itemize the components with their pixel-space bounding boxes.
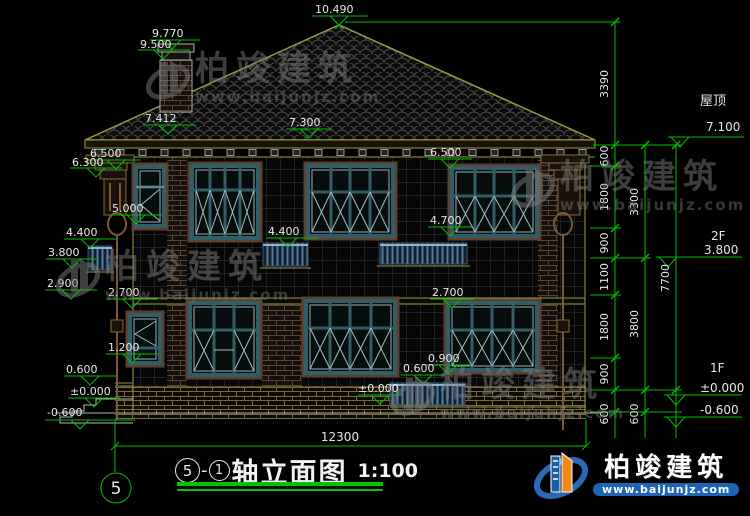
brand-name: 柏竣建筑	[604, 454, 728, 483]
roof-label: 屋顶	[700, 94, 726, 109]
dim-left: 0.600	[66, 363, 98, 376]
dim-mid: 0.600	[403, 362, 435, 375]
vchain-label: 600	[598, 146, 611, 167]
dim-left: 1.200	[108, 341, 140, 354]
f2-level: 3.800	[704, 243, 738, 257]
dim-mid: 4.400	[268, 225, 300, 238]
dim-left: 5.000	[112, 202, 144, 215]
total-width-dim: 12300	[321, 430, 359, 444]
roof-level: 7.100	[706, 120, 740, 134]
dim-left: 2.900	[47, 277, 79, 290]
dim-eave: 7.300	[289, 116, 321, 129]
railing-2f-left	[260, 243, 311, 268]
vchain-label: 1100	[598, 263, 611, 291]
window-2f-left	[189, 163, 261, 241]
title-underline-thin	[177, 489, 383, 491]
title-underline	[177, 482, 383, 486]
dim-mid: 6.500	[430, 146, 462, 159]
dim-left: -0.600	[47, 406, 82, 419]
brand-url: www.baijunjz.com	[593, 483, 739, 496]
title-dash: -	[201, 460, 208, 481]
axis-bubble-number: 5	[111, 479, 122, 499]
eave-fascia	[85, 140, 595, 148]
eave-dentils	[85, 150, 595, 158]
dim-mid: ±0.000	[358, 382, 399, 395]
brick-pilaster	[167, 157, 187, 386]
brand-logo: 柏竣建筑 www.baijunjz.com	[532, 444, 739, 506]
dim-left: ±0.000	[70, 385, 111, 398]
vchain-label: 7700	[659, 264, 672, 292]
dim-mid: 2.700	[432, 286, 464, 299]
dim-left: 2.700	[108, 286, 140, 299]
vchain-label: 900	[598, 364, 611, 385]
dim-left: 3.800	[48, 246, 80, 259]
vchain-label: 3800	[628, 310, 641, 338]
railing-2f-right	[377, 243, 470, 266]
brand-logo-icon	[532, 444, 590, 506]
window-1f-left	[187, 300, 261, 378]
window-2f-middle	[305, 163, 396, 239]
dim-chimney-cap: 9.500	[140, 38, 172, 51]
window-2f-stair	[133, 164, 167, 229]
dim-mid: 4.700	[430, 214, 462, 227]
elevation-svg: 10.490 9.770 9.500 7.412 7.300 6.500 6.3…	[0, 0, 750, 516]
vchain-label: 3300	[628, 188, 641, 216]
vchain-label: 3390	[598, 70, 611, 98]
vchain-label: 600	[598, 404, 611, 425]
below-level: -0.600	[700, 403, 739, 417]
dim-apex: 10.490	[315, 3, 354, 16]
dim-left: 6.300	[72, 156, 104, 169]
window-2f-right	[449, 165, 540, 239]
vchain-label: 900	[598, 233, 611, 254]
f2-label: 2F	[711, 229, 726, 243]
brick-pilaster	[262, 304, 302, 386]
dim-chimney-base: 7.412	[145, 112, 177, 125]
building-facade	[55, 25, 600, 430]
cad-elevation-drawing: 10.490 9.770 9.500 7.412 7.300 6.500 6.3…	[0, 0, 750, 516]
title-scale: 1:100	[358, 460, 418, 482]
vchain-label: 1800	[598, 313, 611, 341]
title-axis-end-bubble: 1	[209, 460, 230, 481]
window-1f-stair	[127, 312, 163, 366]
window-1f-middle	[303, 298, 398, 376]
f1-label: 1F	[710, 361, 725, 375]
title-axis-start-bubble: 5	[175, 458, 200, 483]
vchain-label: 600	[628, 404, 641, 425]
f1-level: ±0.000	[700, 381, 744, 395]
dim-left: 4.400	[66, 226, 98, 239]
plinth-base	[115, 386, 586, 419]
chimney	[158, 44, 194, 112]
vchain-label: 1800	[598, 183, 611, 211]
